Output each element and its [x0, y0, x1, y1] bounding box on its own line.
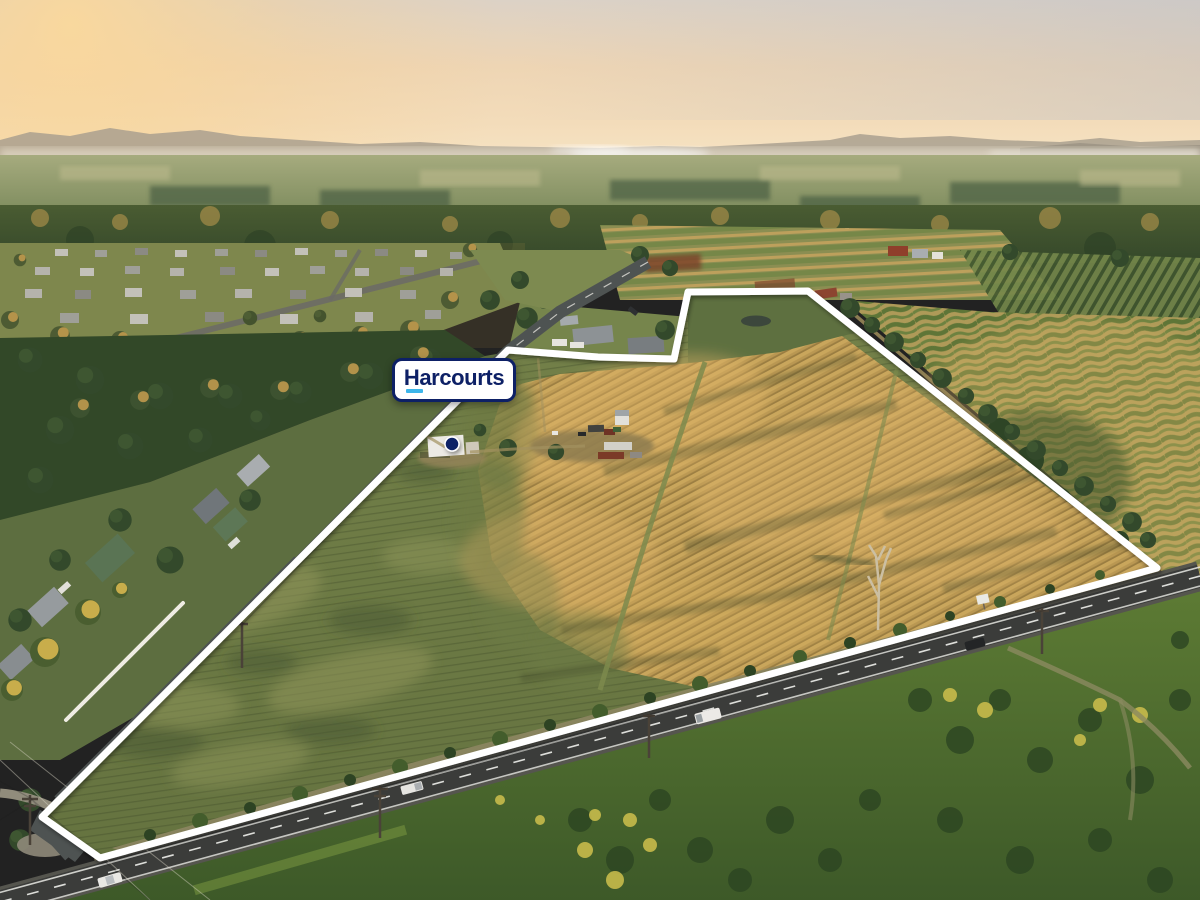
landscape-scene — [0, 0, 1200, 900]
property-location-dot — [445, 437, 459, 451]
harcourts-label: Harcourts — [404, 367, 504, 389]
distant-plains — [0, 155, 1200, 213]
harcourts-cyan-underline-icon — [406, 389, 423, 393]
farm-dam — [741, 316, 771, 327]
aerial-property-photo: Harcourts — [0, 0, 1200, 900]
harcourts-sign: Harcourts — [392, 358, 516, 402]
